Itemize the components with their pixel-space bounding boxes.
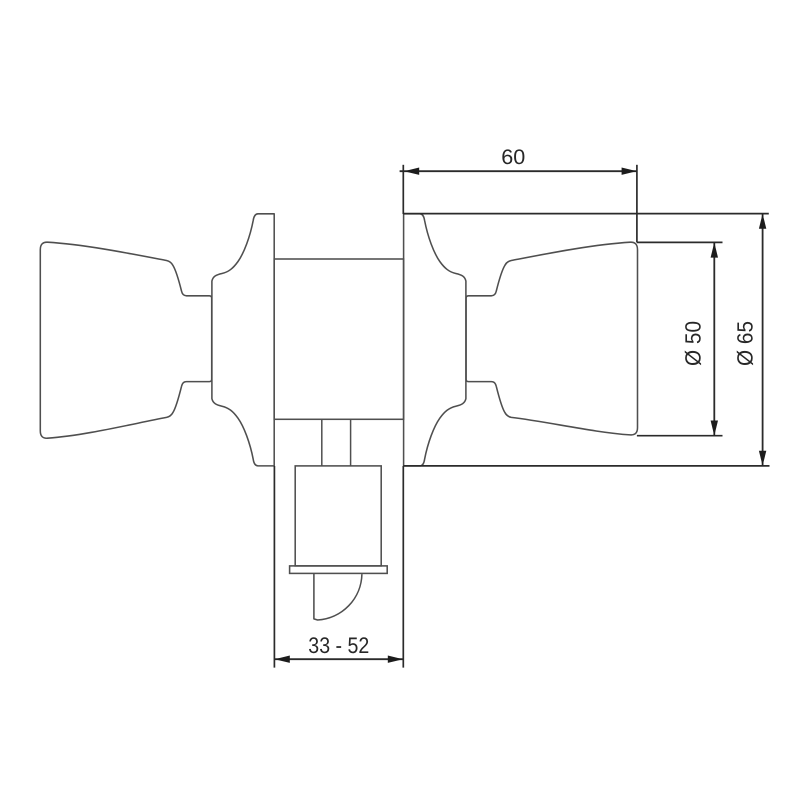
svg-text:60: 60 <box>501 146 525 169</box>
svg-text:Ø 50: Ø 50 <box>681 321 706 366</box>
svg-text:33 - 52: 33 - 52 <box>308 633 369 658</box>
svg-text:Ø 65: Ø 65 <box>733 321 758 366</box>
